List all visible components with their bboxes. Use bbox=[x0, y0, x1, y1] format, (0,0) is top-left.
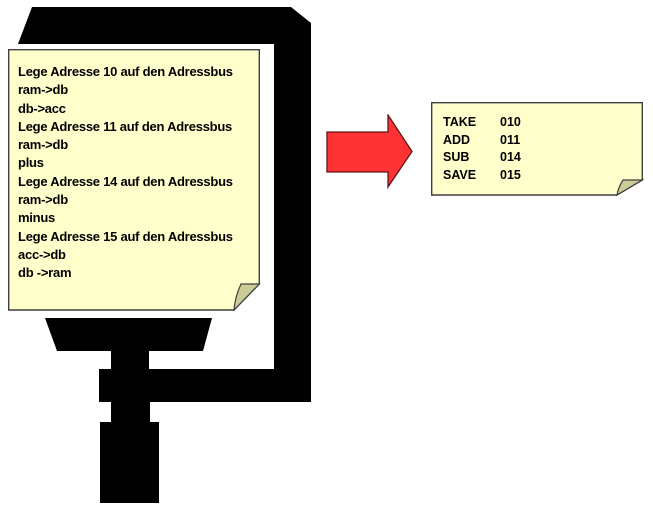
source-program-note: Lege Adresse 10 auf den Adressbus ram->d… bbox=[8, 49, 260, 313]
instruction-address: 015 bbox=[500, 167, 521, 185]
assembly-listing: TAKE 010 ADD 011 SUB 014 SAVE 015 bbox=[431, 102, 643, 196]
right-arrow-icon bbox=[326, 114, 414, 189]
instruction-opcode: TAKE bbox=[443, 114, 500, 132]
program-line: ram->db bbox=[18, 191, 256, 209]
diagram-canvas: Lege Adresse 10 auf den Adressbus ram->d… bbox=[0, 0, 653, 509]
program-line: Lege Adresse 14 auf den Adressbus bbox=[18, 173, 256, 191]
program-line: ram->db bbox=[18, 136, 256, 154]
program-line: acc->db bbox=[18, 246, 256, 264]
program-line: plus bbox=[18, 154, 256, 172]
clamp-spindle-upper-shape bbox=[111, 349, 149, 371]
instruction-address: 010 bbox=[500, 114, 521, 132]
clamp-spindle-lower-shape bbox=[111, 401, 150, 423]
program-line: db ->ram bbox=[18, 264, 256, 282]
program-line: Lege Adresse 15 auf den Adressbus bbox=[18, 228, 256, 246]
instruction-address: 014 bbox=[500, 149, 521, 167]
instruction-row: TAKE 010 bbox=[443, 114, 639, 132]
instruction-opcode: ADD bbox=[443, 132, 500, 150]
program-line: Lege Adresse 11 auf den Adressbus bbox=[18, 118, 256, 136]
arrow-polygon bbox=[327, 115, 412, 187]
program-line: db->acc bbox=[18, 100, 256, 118]
instruction-row: SUB 014 bbox=[443, 149, 639, 167]
clamp-pad-shape bbox=[45, 318, 212, 351]
program-line: ram->db bbox=[18, 81, 256, 99]
program-line: minus bbox=[18, 209, 256, 227]
assembly-result-note: TAKE 010 ADD 011 SUB 014 SAVE 015 bbox=[431, 102, 643, 196]
source-program-text: Lege Adresse 10 auf den Adressbus ram->d… bbox=[8, 49, 260, 313]
instruction-row: ADD 011 bbox=[443, 132, 639, 150]
instruction-row: SAVE 015 bbox=[443, 167, 639, 185]
instruction-opcode: SAVE bbox=[443, 167, 500, 185]
program-line: Lege Adresse 10 auf den Adressbus bbox=[18, 63, 256, 81]
clamp-handle-shape bbox=[100, 422, 159, 503]
instruction-address: 011 bbox=[500, 132, 520, 150]
instruction-opcode: SUB bbox=[443, 149, 500, 167]
